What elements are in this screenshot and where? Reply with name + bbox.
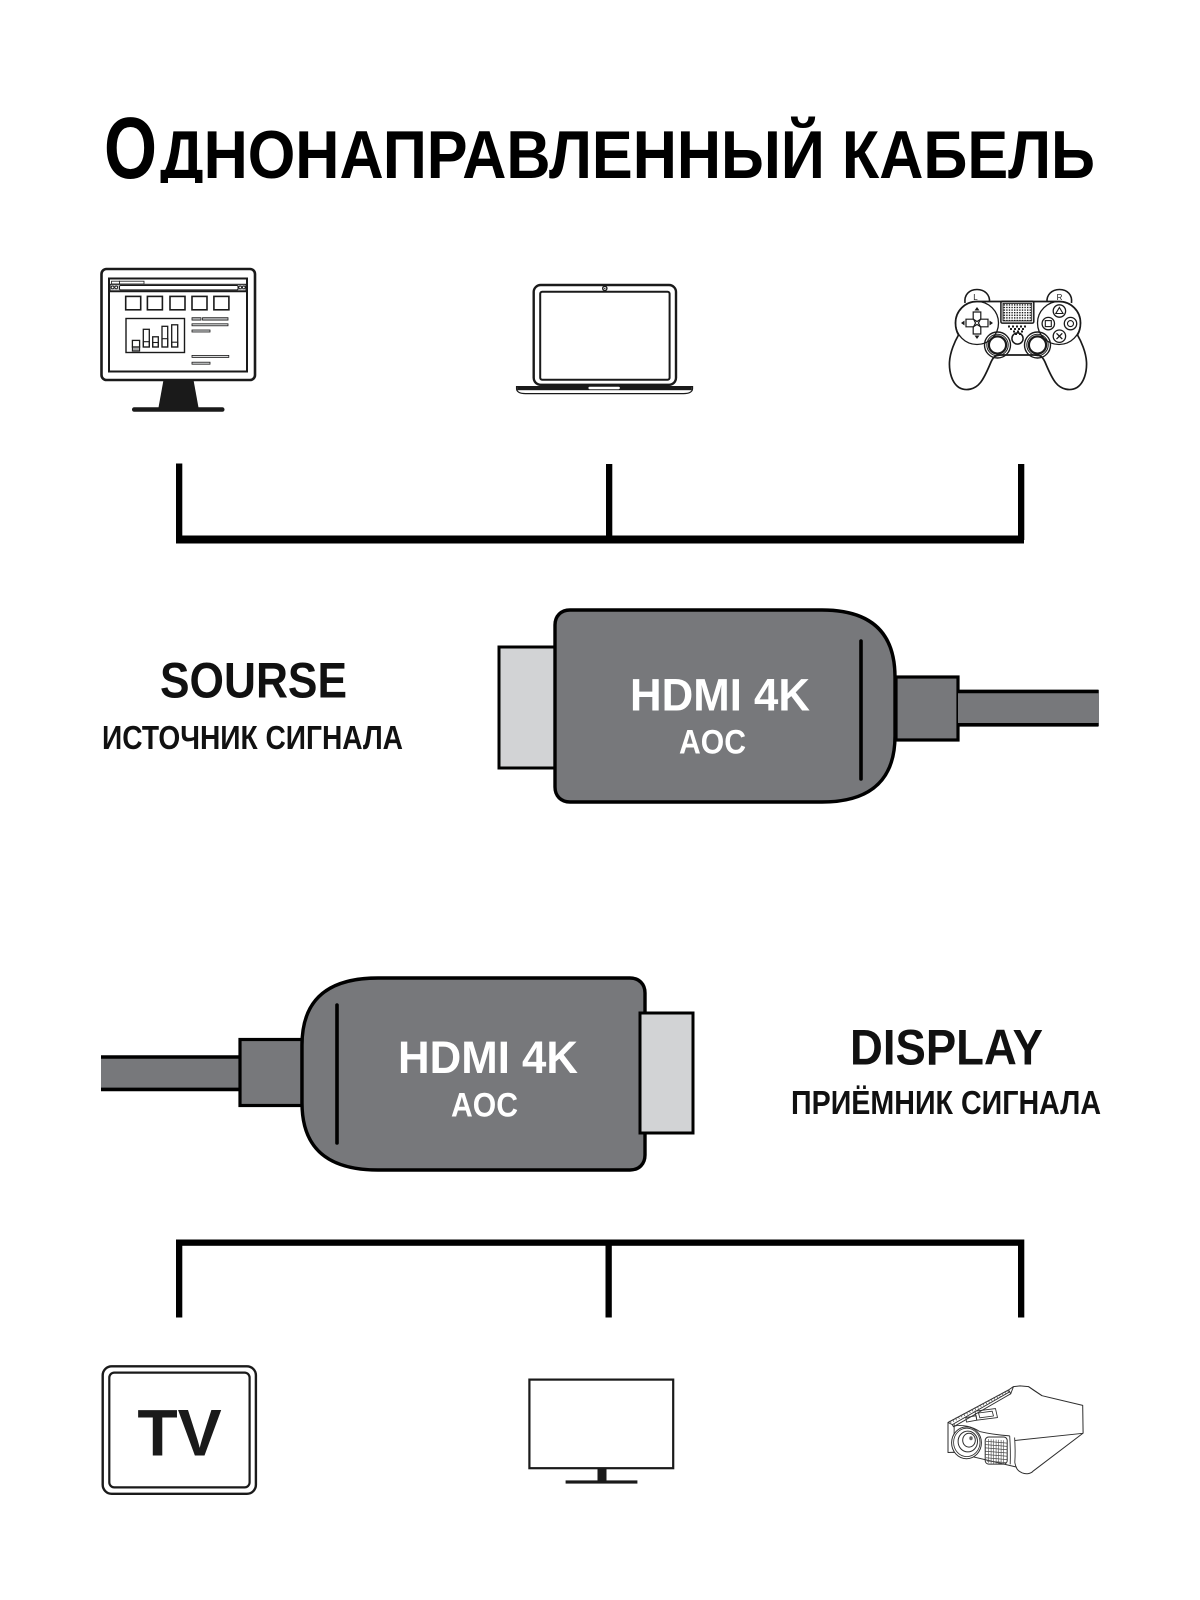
svg-text:R: R [1057, 293, 1063, 302]
svg-text:DISPLAY: DISPLAY [850, 1020, 1043, 1076]
svg-text:О: О [104, 100, 157, 197]
svg-text:HDMI 4K: HDMI 4K [630, 670, 810, 721]
svg-text:L: L [973, 293, 978, 302]
svg-text:SOURSE: SOURSE [160, 653, 347, 709]
svg-text:AOC: AOC [679, 724, 746, 762]
svg-text:HDMI 4K: HDMI 4K [398, 1032, 578, 1083]
svg-text:ДНОНАПРАВЛЕННЫЙ КАБЕЛЬ: ДНОНАПРАВЛЕННЫЙ КАБЕЛЬ [160, 116, 1095, 193]
svg-text:ИСТОЧНИК СИГНАЛА: ИСТОЧНИК СИГНАЛА [102, 719, 403, 756]
svg-text:TV: TV [137, 1395, 221, 1469]
svg-text:ПРИЁМНИК СИГНАЛА: ПРИЁМНИК СИГНАЛА [791, 1084, 1101, 1121]
svg-text:AOC: AOC [451, 1087, 518, 1125]
